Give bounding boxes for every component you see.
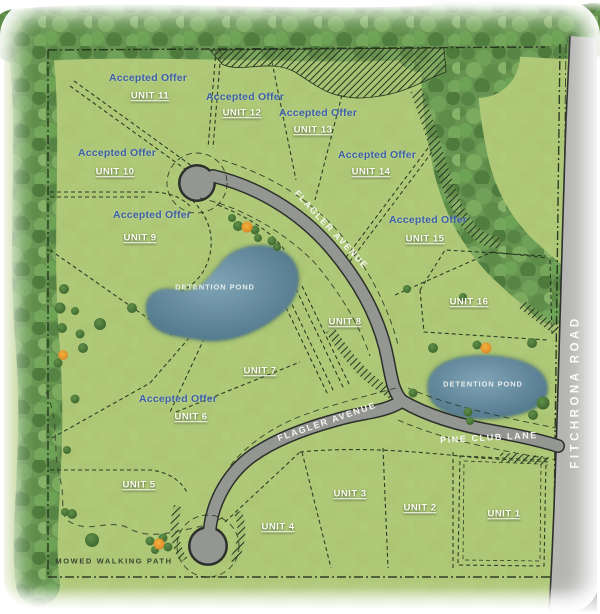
label-unit-14: UNIT 14 (352, 167, 391, 177)
accepted-offer-label-unit-6: Accepted Offer (139, 394, 217, 405)
label-unit-12: UNIT 12 (223, 108, 262, 118)
site-plan-canvas (0, 0, 600, 614)
site-plan-map: Accepted Offer Accepted Offer Accepted O… (0, 0, 600, 614)
label-unit-11: UNIT 11 (131, 91, 169, 101)
label-unit-16: UNIT 16 (450, 297, 489, 307)
accepted-offer-label-unit-13: Accepted Offer (279, 108, 357, 119)
accepted-offer-label-unit-15: Accepted Offer (389, 215, 467, 226)
label-unit-9: UNIT 9 (123, 233, 156, 243)
accepted-offer-label-unit-9: Accepted Offer (113, 210, 191, 221)
label-unit-6: UNIT 6 (174, 412, 207, 422)
detention-pond-west-label: DETENTION POND (175, 283, 255, 291)
label-unit-4: UNIT 4 (261, 522, 294, 532)
label-unit-1: UNIT 1 (487, 509, 520, 519)
mowed-walking-path-label: MOWED WALKING PATH (55, 557, 172, 565)
label-unit-13: UNIT 13 (294, 125, 333, 135)
accepted-offer-label-unit-10: Accepted Offer (78, 148, 156, 159)
label-unit-3: UNIT 3 (333, 489, 366, 499)
label-unit-2: UNIT 2 (403, 503, 436, 513)
label-unit-10: UNIT 10 (96, 167, 135, 177)
accepted-offer-label-unit-11: Accepted Offer (109, 73, 187, 84)
label-unit-5: UNIT 5 (122, 480, 155, 490)
road-label-fitchrona: FITCHRONA ROAD (570, 315, 582, 468)
label-unit-7: UNIT 7 (243, 366, 276, 376)
label-unit-8: UNIT 8 (328, 317, 361, 327)
accepted-offer-label-unit-14: Accepted Offer (338, 150, 416, 161)
accepted-offer-label-unit-12: Accepted Offer (206, 92, 284, 103)
detention-pond-east-label: DETENTION POND (443, 380, 523, 388)
label-unit-15: UNIT 15 (406, 234, 445, 244)
